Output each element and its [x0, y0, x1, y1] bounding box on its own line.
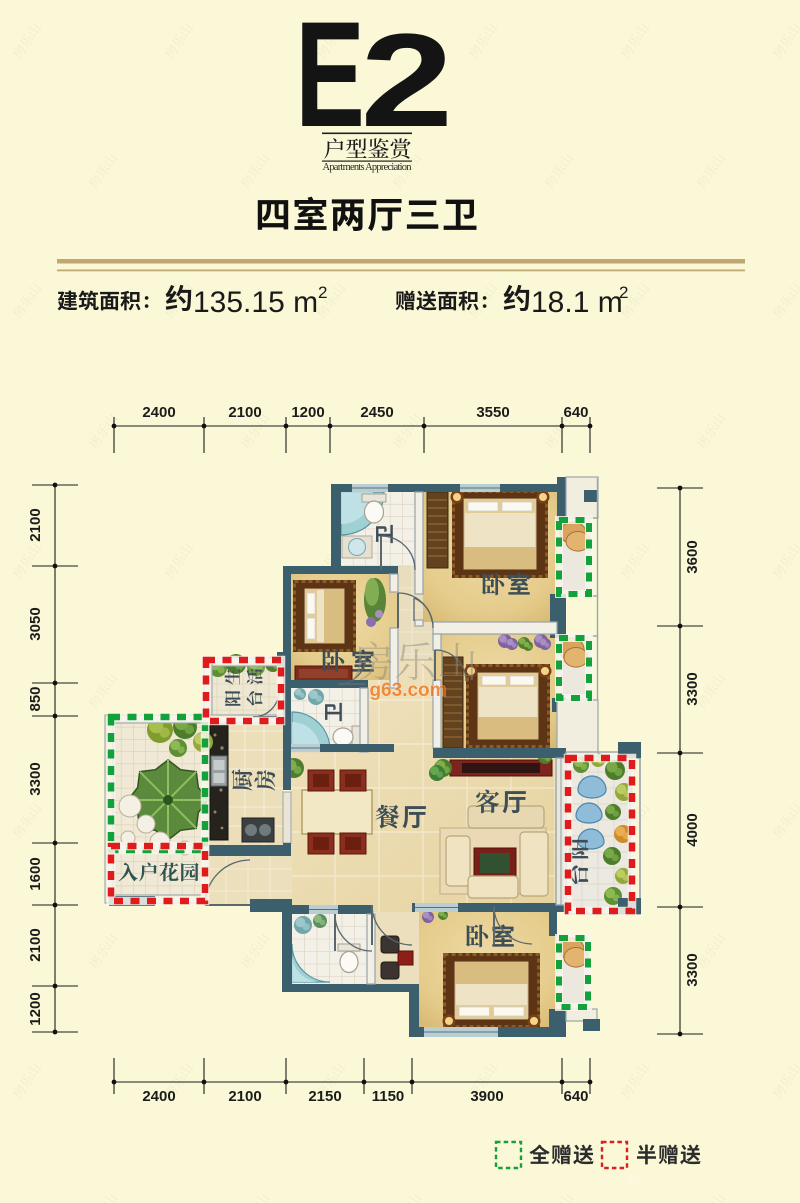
svg-text:2: 2 — [360, 5, 453, 154]
svg-text:2400: 2400 — [142, 404, 175, 421]
svg-text:Apartments Appreciation: Apartments Appreciation — [323, 162, 413, 173]
svg-text:18.1 m: 18.1 m — [531, 286, 623, 319]
svg-text:4000: 4000 — [684, 813, 701, 846]
svg-text:2100: 2100 — [27, 928, 44, 961]
svg-text:g63.com: g63.com — [369, 680, 446, 701]
svg-text:2: 2 — [318, 283, 327, 302]
svg-text:640: 640 — [563, 1088, 588, 1105]
svg-text:850: 850 — [27, 686, 44, 711]
svg-text:2100: 2100 — [228, 404, 261, 421]
svg-text:2: 2 — [619, 283, 628, 302]
svg-text:3300: 3300 — [684, 672, 701, 705]
svg-text:2150: 2150 — [308, 1088, 341, 1105]
svg-text:3300: 3300 — [27, 762, 44, 795]
svg-text:2400: 2400 — [142, 1088, 175, 1105]
svg-text:2100: 2100 — [27, 508, 44, 541]
svg-text:1600: 1600 — [27, 857, 44, 890]
svg-text:3050: 3050 — [27, 607, 44, 640]
svg-text:3300: 3300 — [684, 953, 701, 986]
svg-text:3600: 3600 — [684, 540, 701, 573]
svg-text:1150: 1150 — [372, 1088, 405, 1105]
svg-text:2100: 2100 — [228, 1088, 261, 1105]
svg-text:1200: 1200 — [27, 992, 44, 1025]
svg-text:3550: 3550 — [476, 404, 509, 421]
svg-text:135.15 m: 135.15 m — [193, 286, 318, 319]
svg-text:640: 640 — [563, 404, 588, 421]
svg-text:E: E — [295, 0, 364, 159]
svg-text:2450: 2450 — [360, 404, 393, 421]
svg-text:1200: 1200 — [291, 404, 324, 421]
svg-text:3900: 3900 — [470, 1088, 503, 1105]
